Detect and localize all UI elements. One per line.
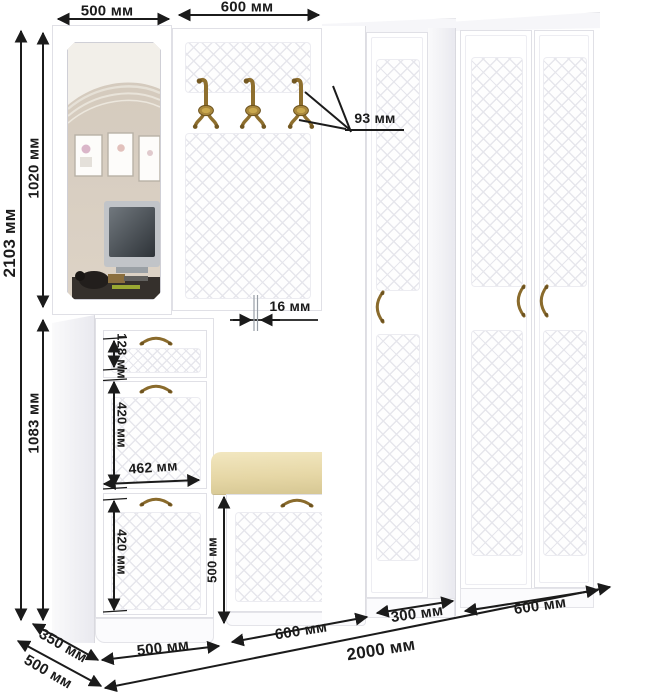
dim-lower-height: 1083 мм <box>26 392 43 453</box>
drawer-handle-icon <box>138 336 174 346</box>
door-upper-quilt <box>543 57 587 287</box>
wide-wardrobe-door-right <box>534 30 594 588</box>
shoe-cabinet-side <box>52 315 95 643</box>
tv-reflection <box>104 201 160 273</box>
narrow-wardrobe-right-side <box>428 28 456 616</box>
coat-hook-icon <box>238 74 268 132</box>
flap-handle-icon <box>138 497 174 507</box>
dim-lower-flap-height: 420 мм <box>115 529 130 575</box>
coat-hook-panel <box>172 28 322 311</box>
mirror-reflection <box>68 43 160 299</box>
door-lower-quilt <box>376 334 420 561</box>
dim-hook-depth: 93 мм <box>354 110 395 126</box>
door-lower-quilt <box>471 330 523 556</box>
dim-bench-height: 500 мм <box>205 537 220 583</box>
dim-total-height: 2103 мм <box>0 208 20 277</box>
dim-upper-height: 1020 мм <box>26 137 43 198</box>
coat-hook-icon <box>191 74 221 132</box>
flap-handle-icon <box>138 384 174 394</box>
wide-wardrobe-door-left <box>460 30 532 590</box>
door-handle-icon <box>516 283 526 319</box>
dim-top-mirror-width: 500 мм <box>81 3 134 20</box>
door-handle-icon <box>539 283 549 319</box>
dim-top-hook-panel-width: 600 мм <box>221 0 274 16</box>
wide-wardrobe-roof <box>456 12 600 31</box>
dim-upper-flap-height: 420 мм <box>115 402 130 448</box>
mirror-cabinet <box>52 25 172 315</box>
dim-panel-thickness: 16 мм <box>269 298 310 314</box>
framed-pictures <box>75 133 160 181</box>
coat-hook-icon <box>286 74 316 132</box>
door-upper-quilt <box>376 59 420 291</box>
bench-handle-icon <box>279 498 315 508</box>
door-handle-icon <box>375 289 385 325</box>
dim-drawer-height: 128 мм <box>115 333 130 379</box>
door-upper-quilt <box>471 57 523 287</box>
door-lower-quilt <box>543 330 587 556</box>
hallway-furniture-diagram: 500 мм 600 мм 2103 мм 1020 мм 1083 мм 93… <box>0 0 660 700</box>
dim-inner-width: 462 мм <box>128 457 178 476</box>
hook-panel-lower-quilt <box>185 133 311 299</box>
shoe-cabinet-plinth <box>95 618 214 643</box>
dim-total-width: 2000 мм <box>345 635 416 666</box>
mirror <box>67 42 161 300</box>
